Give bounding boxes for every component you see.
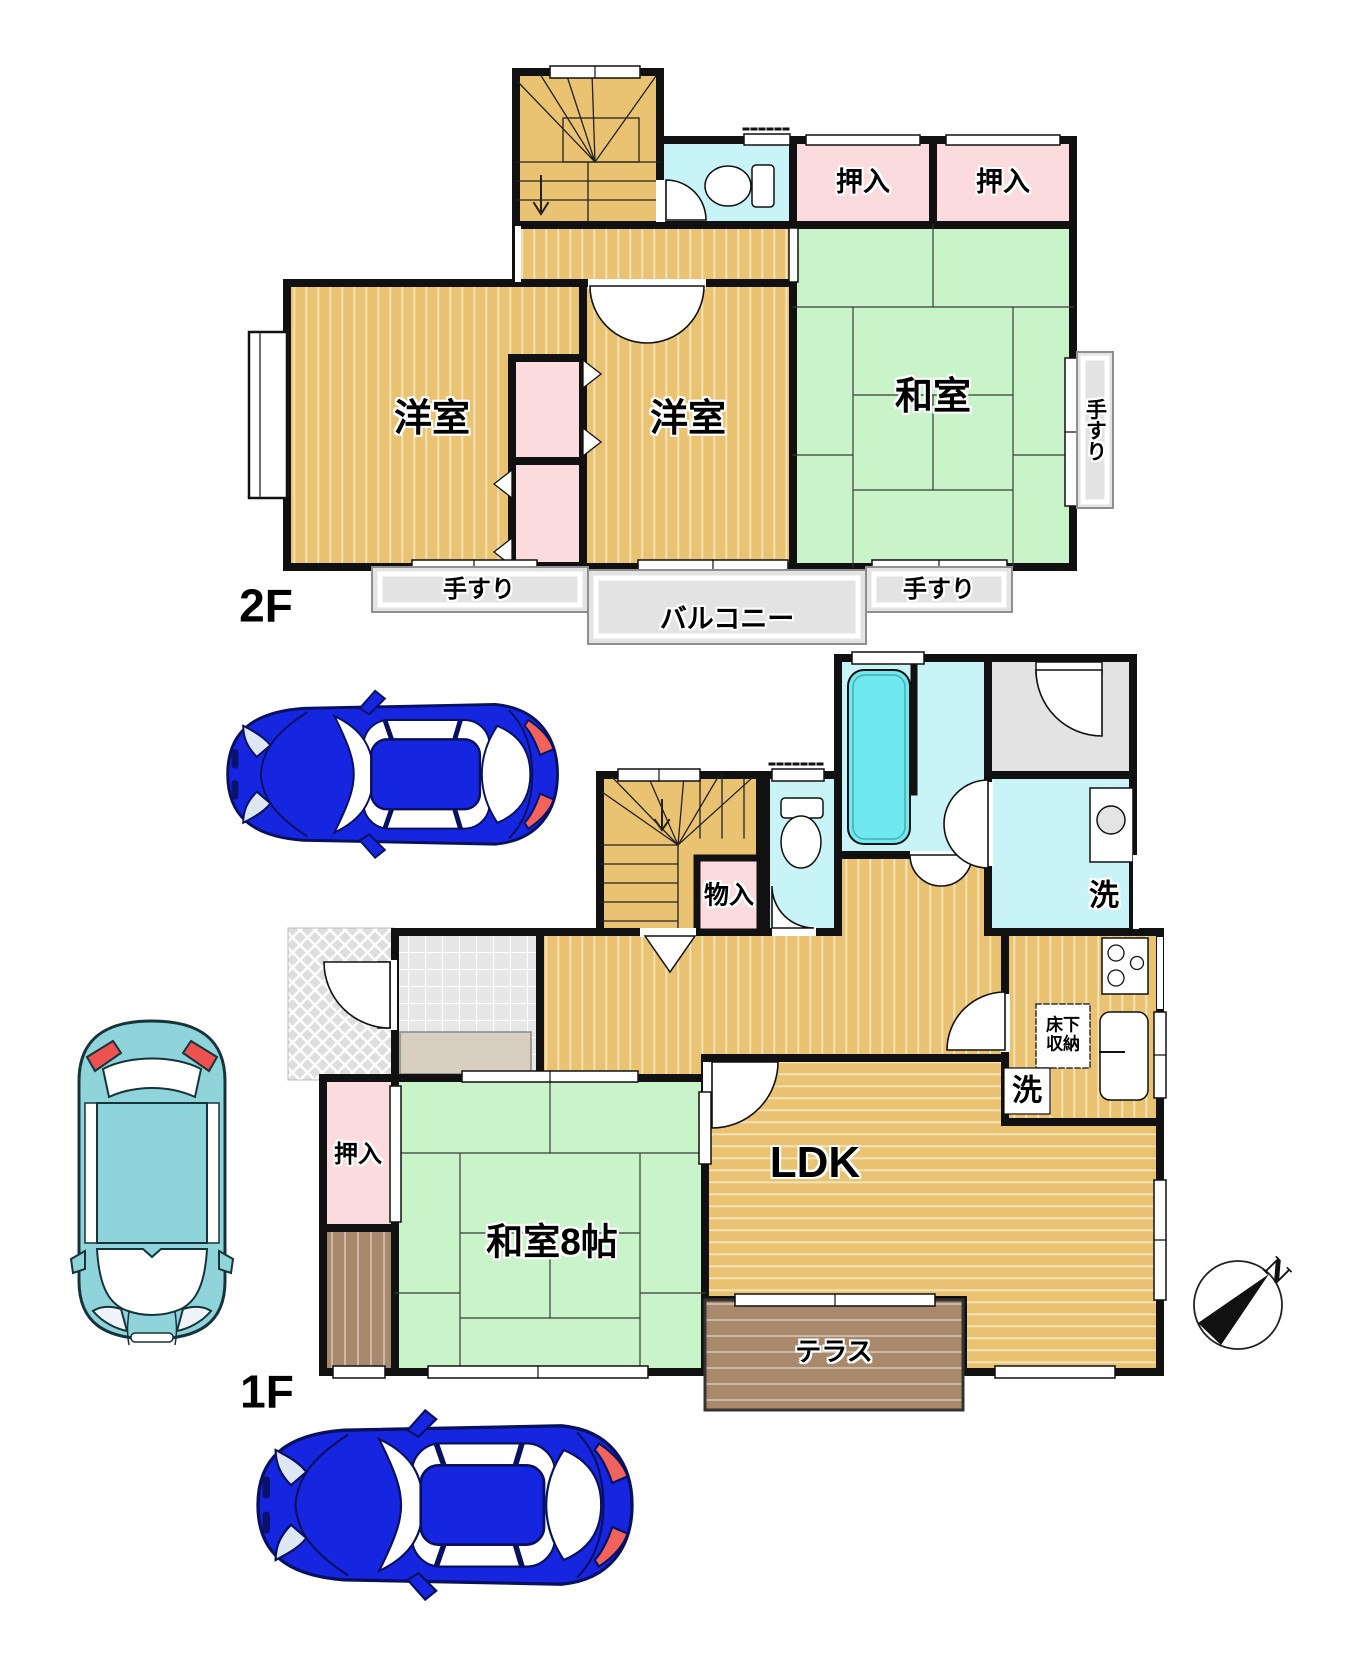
floorplan-page: N 2F 洋室 洋室 和室 押入 押入 手すり 手すり 手すり バルコニー 1F… (0, 0, 1356, 1671)
car-blue-bottom-icon (258, 1410, 632, 1599)
floor-label-2f: 2F (239, 581, 293, 632)
floor-2f-plan (249, 66, 1113, 644)
label-2f-western-left: 洋室 (394, 399, 470, 441)
label-ldk: LDK (770, 1139, 860, 1187)
closet-mid-bottom (512, 461, 583, 566)
label-balcony: バルコニー (660, 605, 794, 635)
genkan-step (400, 1032, 531, 1074)
label-kitchen-wash: 洗 (1012, 1075, 1042, 1108)
label-2f-western-right: 洋室 (650, 399, 726, 441)
wash-basin-bowl (1097, 806, 1125, 834)
toilet-icon-1f (781, 798, 823, 868)
label-1f-japanese: 和室8帖 (486, 1223, 618, 1264)
label-underfloor-storage: 床下 収納 (1046, 1016, 1080, 1053)
label-2f-closet-b: 押入 (976, 168, 1030, 198)
bathtub (848, 670, 910, 844)
label-handrail-left: 手すり (443, 577, 515, 603)
corridor-2f (516, 225, 793, 283)
engawa-veranda (323, 1228, 395, 1372)
label-2f-japanese: 和室 (895, 377, 971, 419)
label-laundry: 洗 (1089, 880, 1119, 913)
kitchen-sink (1100, 1012, 1148, 1100)
label-handrail-right: 手すり (903, 577, 975, 603)
car-teal-icon (71, 1021, 233, 1345)
floorplan-canvas: N (0, 0, 1356, 1671)
label-handrail-side: 手すり (1083, 399, 1106, 462)
closet-mid-top (512, 358, 583, 461)
floor-label-1f: 1F (240, 1367, 294, 1418)
label-terrace: テラス (795, 1338, 872, 1367)
toilet-icon-2f (705, 165, 774, 207)
label-1f-closet: 押入 (334, 1142, 382, 1168)
label-2f-closet-a: 押入 (836, 168, 890, 198)
compass-rose: N (1194, 1252, 1296, 1349)
car-blue-top-icon (228, 691, 558, 858)
label-1f-storage: 物入 (704, 882, 754, 910)
